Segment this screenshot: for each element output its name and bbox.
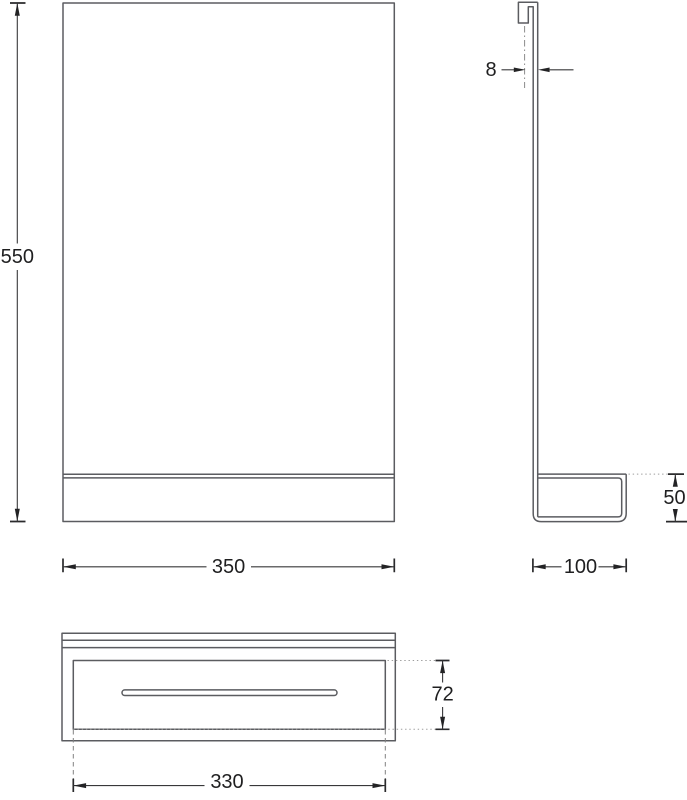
dimension-panel-thickness: 8 (485, 59, 573, 81)
dim-arrow-right (382, 564, 395, 569)
dim-arrow-left-in (538, 68, 550, 73)
dimension-overall-width: 350 (63, 556, 394, 578)
dim-arrow-up (440, 661, 445, 674)
side-shelf-inner-outline (538, 478, 622, 517)
side-hook-panel-shelf-outline (518, 2, 626, 521)
dim-arrow-up (15, 3, 20, 16)
dimension-shelf-depth: 100 (533, 556, 626, 578)
dim-label-shelf-height: 50 (663, 487, 685, 509)
dimension-overall-height: 550 (1, 3, 34, 522)
drawing-svg: 550 350 8 (0, 0, 687, 800)
dim-arrow-down (15, 509, 20, 522)
front-view (63, 3, 394, 522)
dim-arrow-left (63, 564, 76, 569)
dim-arrow-right (373, 783, 386, 788)
dim-arrow-left (533, 564, 546, 569)
bottom-view (62, 633, 395, 741)
dim-label-overall-height: 550 (1, 246, 34, 268)
dim-label-shelf-inner-width: 330 (210, 771, 243, 793)
bottom-outer-rect (62, 633, 395, 741)
side-view (518, 2, 626, 521)
bottom-slot (122, 690, 337, 696)
dim-arrow-down (440, 717, 445, 730)
dim-label-overall-width: 350 (212, 556, 245, 578)
dim-label-shelf-depth: 100 (564, 556, 597, 578)
dim-arrow-left (73, 783, 86, 788)
dim-label-shelf-inner-depth: 72 (431, 684, 453, 706)
dim-label-panel-thickness: 8 (485, 59, 496, 81)
dim-arrow-right (613, 564, 626, 569)
technical-drawing-canvas: 550 350 8 (0, 0, 687, 800)
dimension-shelf-height: 50 (629, 474, 687, 521)
dim-arrow-right-in (514, 68, 526, 73)
dimension-shelf-inner-width: 330 (73, 730, 385, 793)
front-outline (63, 3, 394, 522)
dim-arrow-up (673, 474, 678, 487)
dim-arrow-down (673, 509, 678, 522)
